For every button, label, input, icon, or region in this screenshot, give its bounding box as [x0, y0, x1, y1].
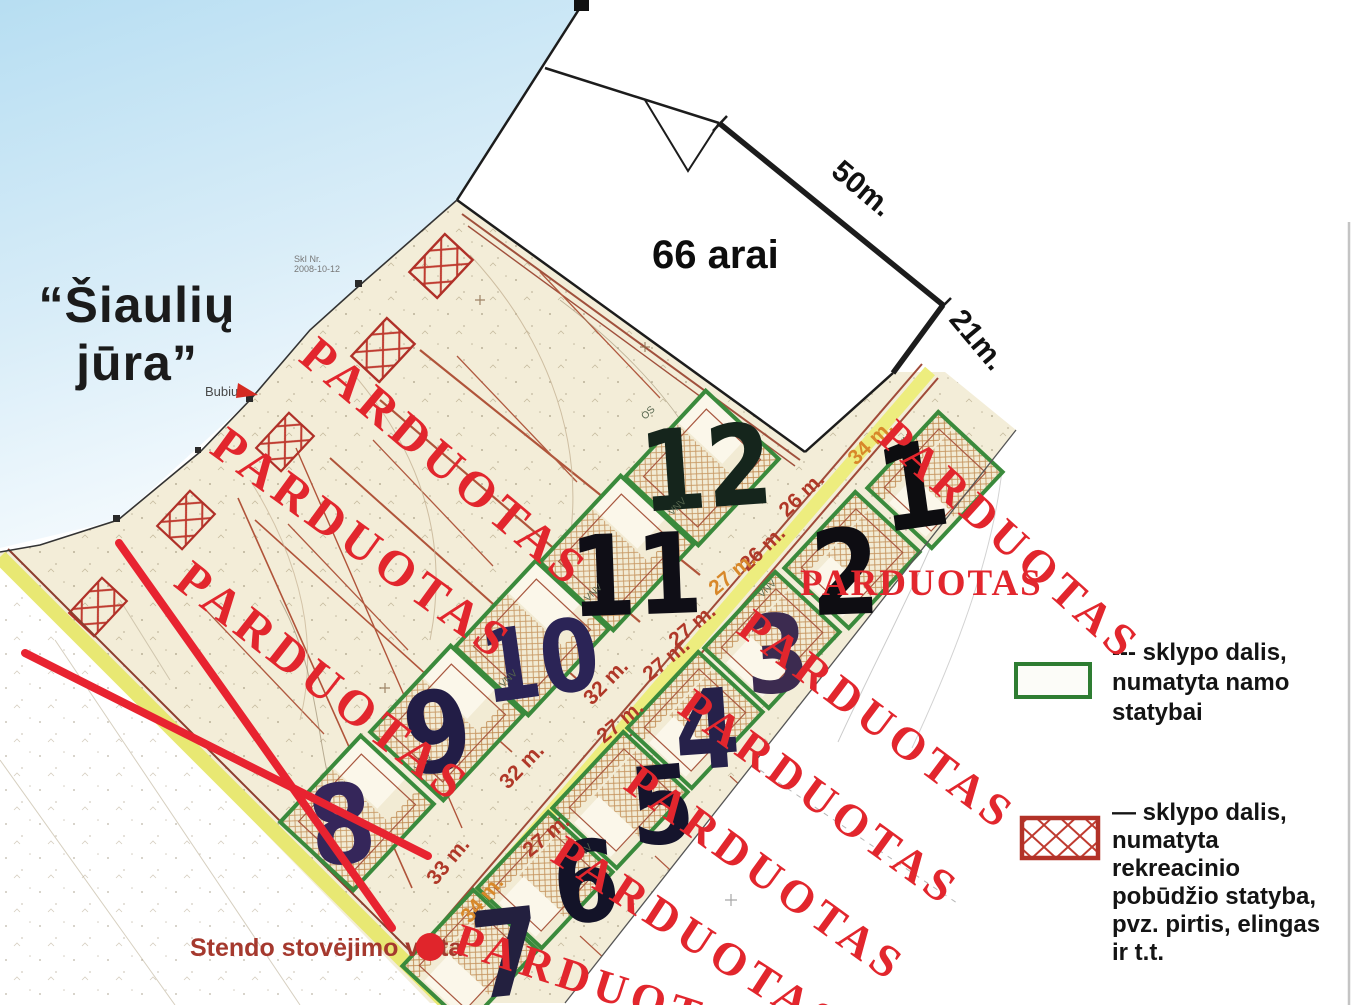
legend-recreation-symbol — [1022, 818, 1098, 858]
legend-recreation-line: pobūdžio statyba, — [1112, 883, 1316, 910]
legend-recreation-line: — sklypo dalis, — [1112, 799, 1287, 826]
legend-recreation-line: pvz. pirtis, elingas — [1112, 911, 1320, 938]
legend-recreation-line: ir t.t. — [1112, 939, 1164, 966]
map-note-line1: SkI Nr. — [294, 254, 321, 264]
map-canvas: 1 2 3 4 5 6 7 8 9 10 11 12 34 m. 26 m. 2… — [0, 0, 1356, 1005]
legend-house-symbol — [1016, 664, 1090, 697]
lake-title-line2: jūra” — [75, 335, 198, 391]
legend-house-line: statybai — [1112, 699, 1203, 726]
map-note-line2: 2008-10-12 — [294, 264, 340, 274]
sold-stamp-horizontal: PARDUOTAS — [800, 563, 1043, 604]
area-66-label: 66 arai — [652, 233, 779, 277]
legend-house-line: numatyta namo — [1112, 669, 1289, 696]
land-plot-sales-map: 1 2 3 4 5 6 7 8 9 10 11 12 34 m. 26 m. 2… — [0, 0, 1356, 1005]
legend-recreation-line: numatyta — [1112, 827, 1219, 854]
legend-recreation-line: rekreacinio — [1112, 855, 1240, 882]
stand-location-dot — [416, 933, 444, 961]
plot-number-12: 12 — [635, 399, 776, 538]
lake-title-line1: “Šiaulių — [39, 276, 236, 333]
